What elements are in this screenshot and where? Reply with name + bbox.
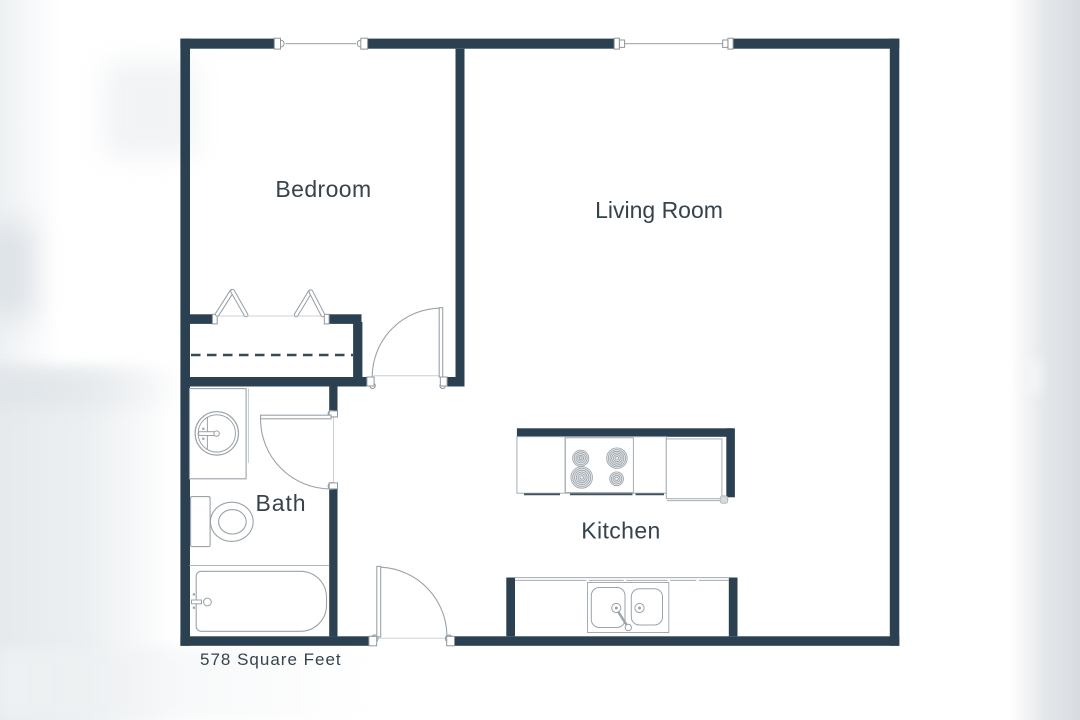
svg-text:Kitchen: Kitchen (581, 518, 661, 544)
svg-text:Bath: Bath (256, 490, 307, 516)
svg-text:578 Square Feet: 578 Square Feet (200, 650, 342, 669)
svg-text:Living Room: Living Room (595, 197, 723, 223)
svg-text:Bedroom: Bedroom (275, 176, 371, 202)
